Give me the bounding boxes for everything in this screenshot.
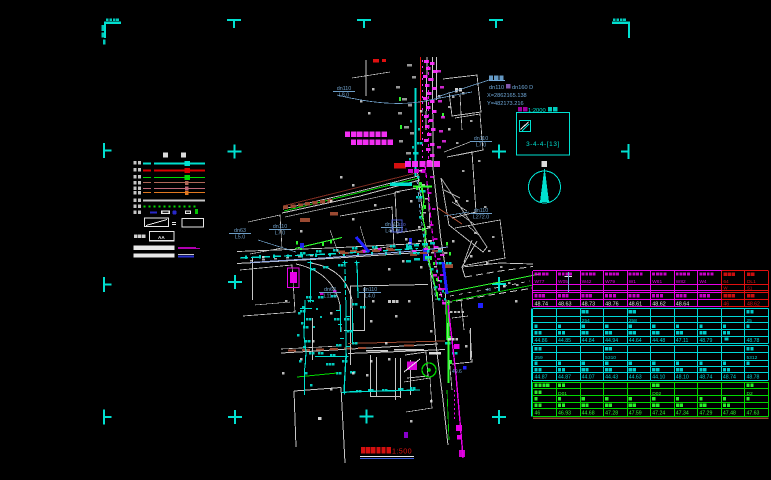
- svg-text:48.74: 48.74: [723, 375, 736, 381]
- svg-text:258: 258: [629, 318, 637, 324]
- svg-text:X=2862165.138: X=2862165.138: [487, 93, 527, 99]
- svg-text:dn110: dn110: [337, 86, 352, 92]
- svg-text:W4: W4: [699, 279, 707, 285]
- svg-text:48.61: 48.61: [629, 302, 643, 308]
- svg-text:dn110: dn110: [273, 224, 288, 230]
- svg-text:48.62: 48.62: [652, 302, 666, 308]
- svg-text:64: 64: [723, 279, 729, 285]
- svg-text:44.85: 44.85: [558, 338, 571, 344]
- svg-text:L11.6: L11.6: [323, 293, 336, 299]
- svg-text:47.24: 47.24: [652, 411, 665, 417]
- svg-text:Y=482173.216: Y=482173.216: [487, 101, 524, 107]
- svg-text:1:2000: 1:2000: [528, 108, 546, 114]
- svg-text:dn110: dn110: [489, 85, 504, 91]
- svg-text:48.10: 48.10: [676, 375, 689, 381]
- svg-text:W81: W81: [652, 279, 662, 285]
- svg-text:40.6: 40.6: [452, 369, 462, 375]
- svg-text:dn110: dn110: [363, 287, 378, 293]
- svg-text:44.10: 44.10: [652, 375, 665, 381]
- svg-text:46: 46: [535, 411, 541, 417]
- svg-text:DL1: DL1: [747, 279, 756, 285]
- svg-text:S1: S1: [747, 286, 753, 291]
- svg-text:L7.0: L7.0: [476, 142, 487, 148]
- svg-text:W1: W1: [629, 279, 637, 285]
- svg-text:44.87: 44.87: [535, 375, 548, 381]
- svg-text:5312: 5312: [746, 355, 757, 361]
- svg-text:L7.0: L7.0: [275, 230, 286, 236]
- svg-text:48.76: 48.76: [605, 302, 619, 308]
- svg-text:48.62: 48.62: [747, 302, 760, 308]
- svg-text:W77: W77: [535, 279, 545, 285]
- svg-text:44.63: 44.63: [629, 375, 642, 381]
- svg-text:dn63: dn63: [324, 287, 336, 293]
- svg-text:44.64: 44.64: [629, 338, 642, 344]
- svg-text:48.63: 48.63: [558, 302, 572, 308]
- svg-text:W05: W05: [558, 279, 568, 285]
- svg-text:47.28: 47.28: [605, 411, 618, 417]
- svg-text:46.93: 46.93: [558, 411, 571, 417]
- svg-text:44.87: 44.87: [558, 375, 571, 381]
- svg-text:42.0: 42.0: [398, 228, 408, 234]
- svg-text:47.48: 47.48: [723, 411, 736, 417]
- svg-text:D02: D02: [652, 391, 661, 397]
- svg-text:1:500: 1:500: [392, 447, 412, 456]
- svg-text:259: 259: [535, 355, 543, 361]
- svg-text:44.07: 44.07: [582, 375, 595, 381]
- svg-text:48.78: 48.78: [746, 338, 759, 344]
- svg-text:47.59: 47.59: [629, 411, 642, 417]
- svg-text:44.43: 44.43: [605, 375, 618, 381]
- svg-text:L5.0: L5.0: [235, 234, 246, 240]
- svg-text:dn63: dn63: [234, 228, 246, 234]
- svg-text:47.63: 47.63: [746, 411, 759, 417]
- svg-text:110: 110: [398, 222, 406, 228]
- svg-text:L4.0: L4.0: [365, 293, 376, 299]
- svg-text:dn110: dn110: [474, 136, 489, 142]
- svg-text:L272.0: L272.0: [473, 214, 490, 220]
- svg-text:254: 254: [582, 318, 590, 324]
- svg-text:44.48: 44.48: [652, 338, 665, 344]
- svg-text:48.79: 48.79: [699, 338, 712, 344]
- svg-text:46: 46: [723, 302, 729, 308]
- svg-text:47.11: 47.11: [676, 338, 689, 344]
- svg-text:5310: 5310: [605, 355, 616, 361]
- svg-text:48.74: 48.74: [699, 375, 712, 381]
- svg-text:25: 25: [746, 318, 752, 324]
- svg-text:D2: D2: [746, 391, 753, 397]
- svg-text:3-4-4-[13]: 3-4-4-[13]: [526, 141, 560, 148]
- svg-text:47.29: 47.29: [699, 411, 712, 417]
- svg-text:47.34: 47.34: [676, 411, 689, 417]
- svg-text:D01: D01: [558, 391, 567, 397]
- svg-text:W42: W42: [582, 279, 592, 285]
- svg-text:48.73: 48.73: [582, 302, 596, 308]
- svg-text:AA: AA: [158, 235, 165, 240]
- svg-text:48.74: 48.74: [535, 302, 549, 308]
- svg-text:44.84: 44.84: [582, 338, 595, 344]
- svg-text:W82: W82: [676, 279, 686, 285]
- svg-text:48.64: 48.64: [676, 302, 690, 308]
- svg-text:44.86: 44.86: [535, 338, 548, 344]
- svg-text:W79: W79: [605, 279, 615, 285]
- svg-text:dn160 D: dn160 D: [512, 85, 533, 91]
- svg-text:dn110: dn110: [474, 208, 489, 214]
- svg-text:L8.0: L8.0: [339, 92, 350, 98]
- svg-text:44.94: 44.94: [605, 338, 618, 344]
- svg-text:48.78: 48.78: [746, 375, 759, 381]
- svg-text:44.68: 44.68: [582, 411, 595, 417]
- svg-text:40: 40: [486, 287, 492, 292]
